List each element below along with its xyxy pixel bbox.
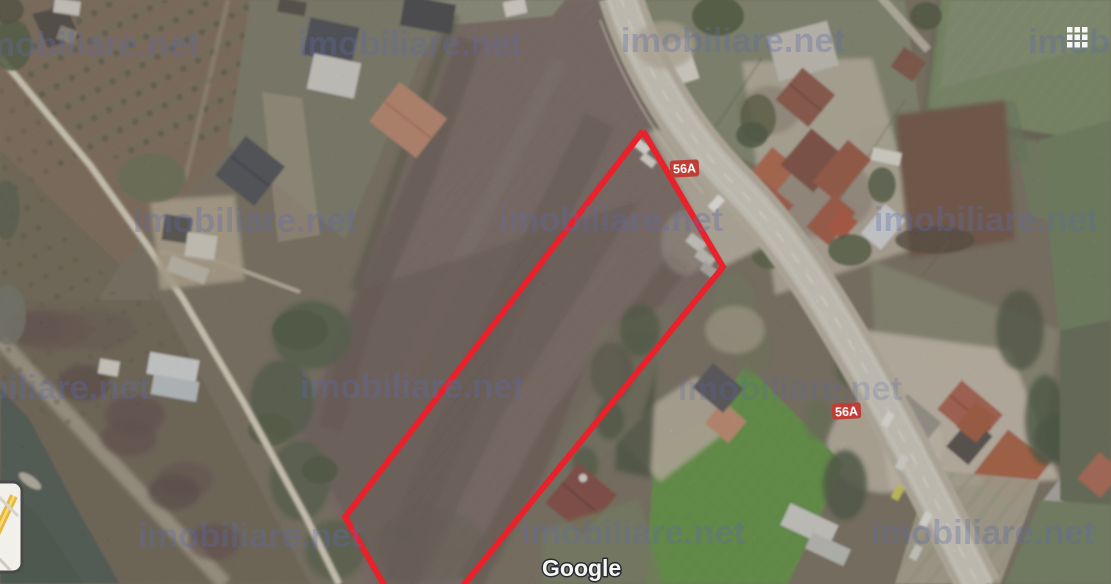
svg-text:imobiliare.net: imobiliare.net bbox=[133, 202, 358, 240]
svg-text:imobiliare.net: imobiliare.net bbox=[138, 517, 363, 555]
svg-text:imobiliare.net: imobiliare.net bbox=[0, 26, 200, 64]
svg-text:imobiliare.net: imobiliare.net bbox=[874, 201, 1099, 239]
svg-text:imobiliare.net: imobiliare.net bbox=[298, 25, 523, 63]
svg-text:imobiliare.net: imobiliare.net bbox=[0, 369, 151, 407]
svg-text:56A: 56A bbox=[835, 404, 859, 419]
svg-text:imobiliare.net: imobiliare.net bbox=[499, 201, 724, 239]
svg-text:imobiliare.net: imobiliare.net bbox=[871, 514, 1096, 552]
svg-text:56A: 56A bbox=[673, 161, 697, 176]
svg-text:imobiliare.net: imobiliare.net bbox=[621, 22, 846, 60]
svg-text:Google: Google bbox=[542, 555, 621, 581]
svg-text:imobiliare.net: imobiliare.net bbox=[521, 514, 746, 552]
svg-text:imobiliare.net: imobiliare.net bbox=[300, 368, 525, 406]
svg-text:imobiliare.net: imobiliare.net bbox=[678, 370, 903, 408]
